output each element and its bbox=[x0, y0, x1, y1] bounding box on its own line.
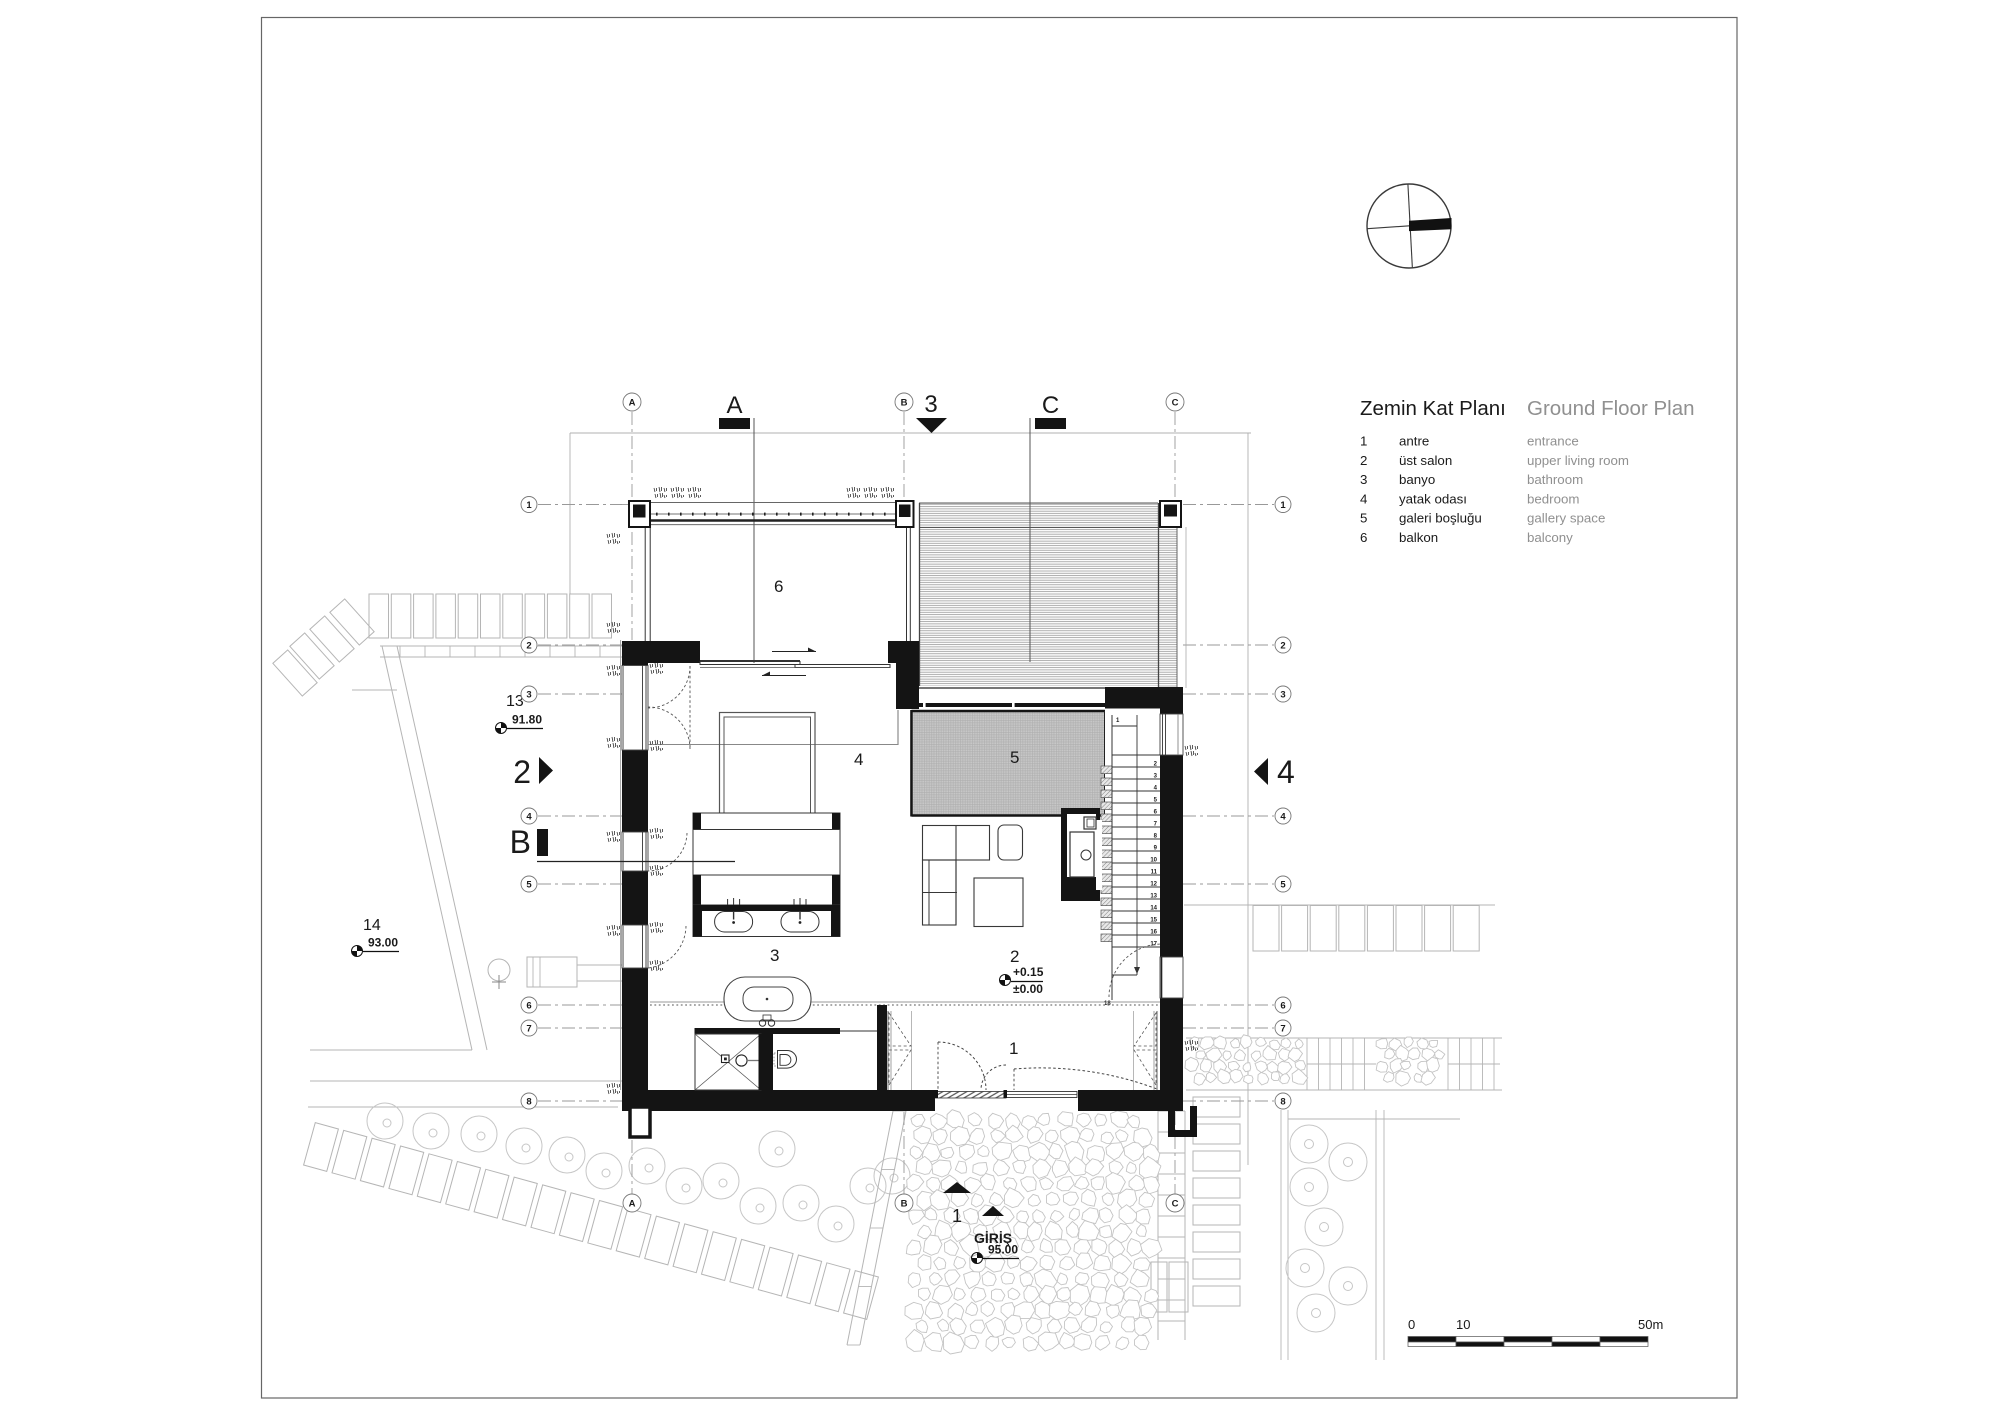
svg-text:B: B bbox=[901, 397, 908, 408]
svg-text:2: 2 bbox=[1360, 453, 1367, 468]
svg-text:galeri boşluğu: galeri boşluğu bbox=[1399, 511, 1482, 526]
svg-text:1: 1 bbox=[1360, 434, 1367, 449]
svg-text:4: 4 bbox=[1277, 754, 1295, 790]
svg-text:11: 11 bbox=[1151, 870, 1158, 876]
svg-text:6: 6 bbox=[526, 1000, 531, 1011]
svg-text:10: 10 bbox=[1150, 858, 1157, 864]
svg-text:3: 3 bbox=[924, 391, 937, 418]
svg-text:5: 5 bbox=[1010, 748, 1019, 767]
svg-text:+0.15: +0.15 bbox=[1013, 965, 1044, 979]
svg-text:4: 4 bbox=[526, 811, 532, 822]
svg-text:0: 0 bbox=[1408, 1317, 1415, 1332]
svg-text:A: A bbox=[629, 1198, 636, 1209]
svg-text:14: 14 bbox=[363, 917, 381, 934]
svg-text:bedroom: bedroom bbox=[1527, 491, 1579, 506]
svg-text:12: 12 bbox=[1150, 882, 1157, 888]
svg-text:5: 5 bbox=[526, 879, 532, 890]
svg-text:2: 2 bbox=[1280, 640, 1285, 651]
svg-text:C: C bbox=[1172, 1198, 1179, 1209]
svg-text:banyo: banyo bbox=[1399, 472, 1435, 487]
svg-text:13: 13 bbox=[1150, 894, 1157, 900]
svg-text:A: A bbox=[726, 392, 742, 419]
svg-text:3: 3 bbox=[526, 689, 531, 700]
svg-text:Zemin Kat Planı: Zemin Kat Planı bbox=[1360, 397, 1506, 420]
svg-text:2: 2 bbox=[1010, 947, 1019, 966]
svg-text:GİRİŞ: GİRİŞ bbox=[974, 1230, 1012, 1246]
svg-text:B: B bbox=[901, 1198, 908, 1209]
svg-text:17: 17 bbox=[1150, 942, 1157, 948]
svg-text:yatak odası: yatak odası bbox=[1399, 491, 1467, 506]
svg-text:gallery space: gallery space bbox=[1527, 511, 1605, 526]
svg-text:6: 6 bbox=[1280, 1000, 1285, 1011]
svg-text:4: 4 bbox=[1360, 491, 1367, 506]
svg-text:3: 3 bbox=[1280, 689, 1285, 700]
svg-text:üst salon: üst salon bbox=[1399, 453, 1452, 468]
svg-text:Ground Floor Plan: Ground Floor Plan bbox=[1527, 397, 1695, 420]
svg-text:91.80: 91.80 bbox=[512, 713, 542, 727]
svg-text:balcony: balcony bbox=[1527, 530, 1573, 545]
svg-text:5: 5 bbox=[1280, 879, 1286, 890]
svg-text:5: 5 bbox=[1360, 511, 1367, 526]
svg-text:2: 2 bbox=[513, 754, 531, 790]
svg-text:1: 1 bbox=[1009, 1039, 1018, 1058]
svg-text:6: 6 bbox=[774, 577, 783, 596]
svg-text:14: 14 bbox=[1150, 906, 1157, 912]
svg-text:10: 10 bbox=[1456, 1317, 1470, 1332]
svg-text:4: 4 bbox=[854, 750, 863, 769]
svg-text:50m: 50m bbox=[1638, 1317, 1663, 1332]
svg-text:balkon: balkon bbox=[1399, 530, 1438, 545]
svg-text:C: C bbox=[1172, 397, 1179, 408]
svg-text:upper living room: upper living room bbox=[1527, 453, 1629, 468]
svg-text:bathroom: bathroom bbox=[1527, 472, 1583, 487]
svg-text:4: 4 bbox=[1280, 811, 1286, 822]
svg-text:15: 15 bbox=[1150, 918, 1157, 924]
svg-text:C: C bbox=[1042, 392, 1059, 419]
svg-text:2: 2 bbox=[526, 640, 531, 651]
svg-text:1: 1 bbox=[952, 1206, 962, 1226]
svg-text:6: 6 bbox=[1360, 530, 1367, 545]
svg-text:1: 1 bbox=[526, 500, 532, 511]
svg-text:1: 1 bbox=[1280, 500, 1286, 511]
svg-text:A: A bbox=[629, 397, 636, 408]
svg-text:entrance: entrance bbox=[1527, 434, 1579, 449]
svg-text:B: B bbox=[510, 824, 531, 860]
svg-text:3: 3 bbox=[1360, 472, 1367, 487]
svg-text:8: 8 bbox=[526, 1096, 531, 1107]
svg-text:7: 7 bbox=[526, 1023, 531, 1034]
svg-text:16: 16 bbox=[1150, 930, 1157, 936]
svg-text:7: 7 bbox=[1280, 1023, 1285, 1034]
svg-text:3: 3 bbox=[770, 946, 779, 965]
svg-text:±0.00: ±0.00 bbox=[1013, 982, 1043, 996]
svg-text:8: 8 bbox=[1280, 1096, 1285, 1107]
svg-text:antre: antre bbox=[1399, 434, 1429, 449]
svg-text:93.00: 93.00 bbox=[368, 936, 398, 950]
